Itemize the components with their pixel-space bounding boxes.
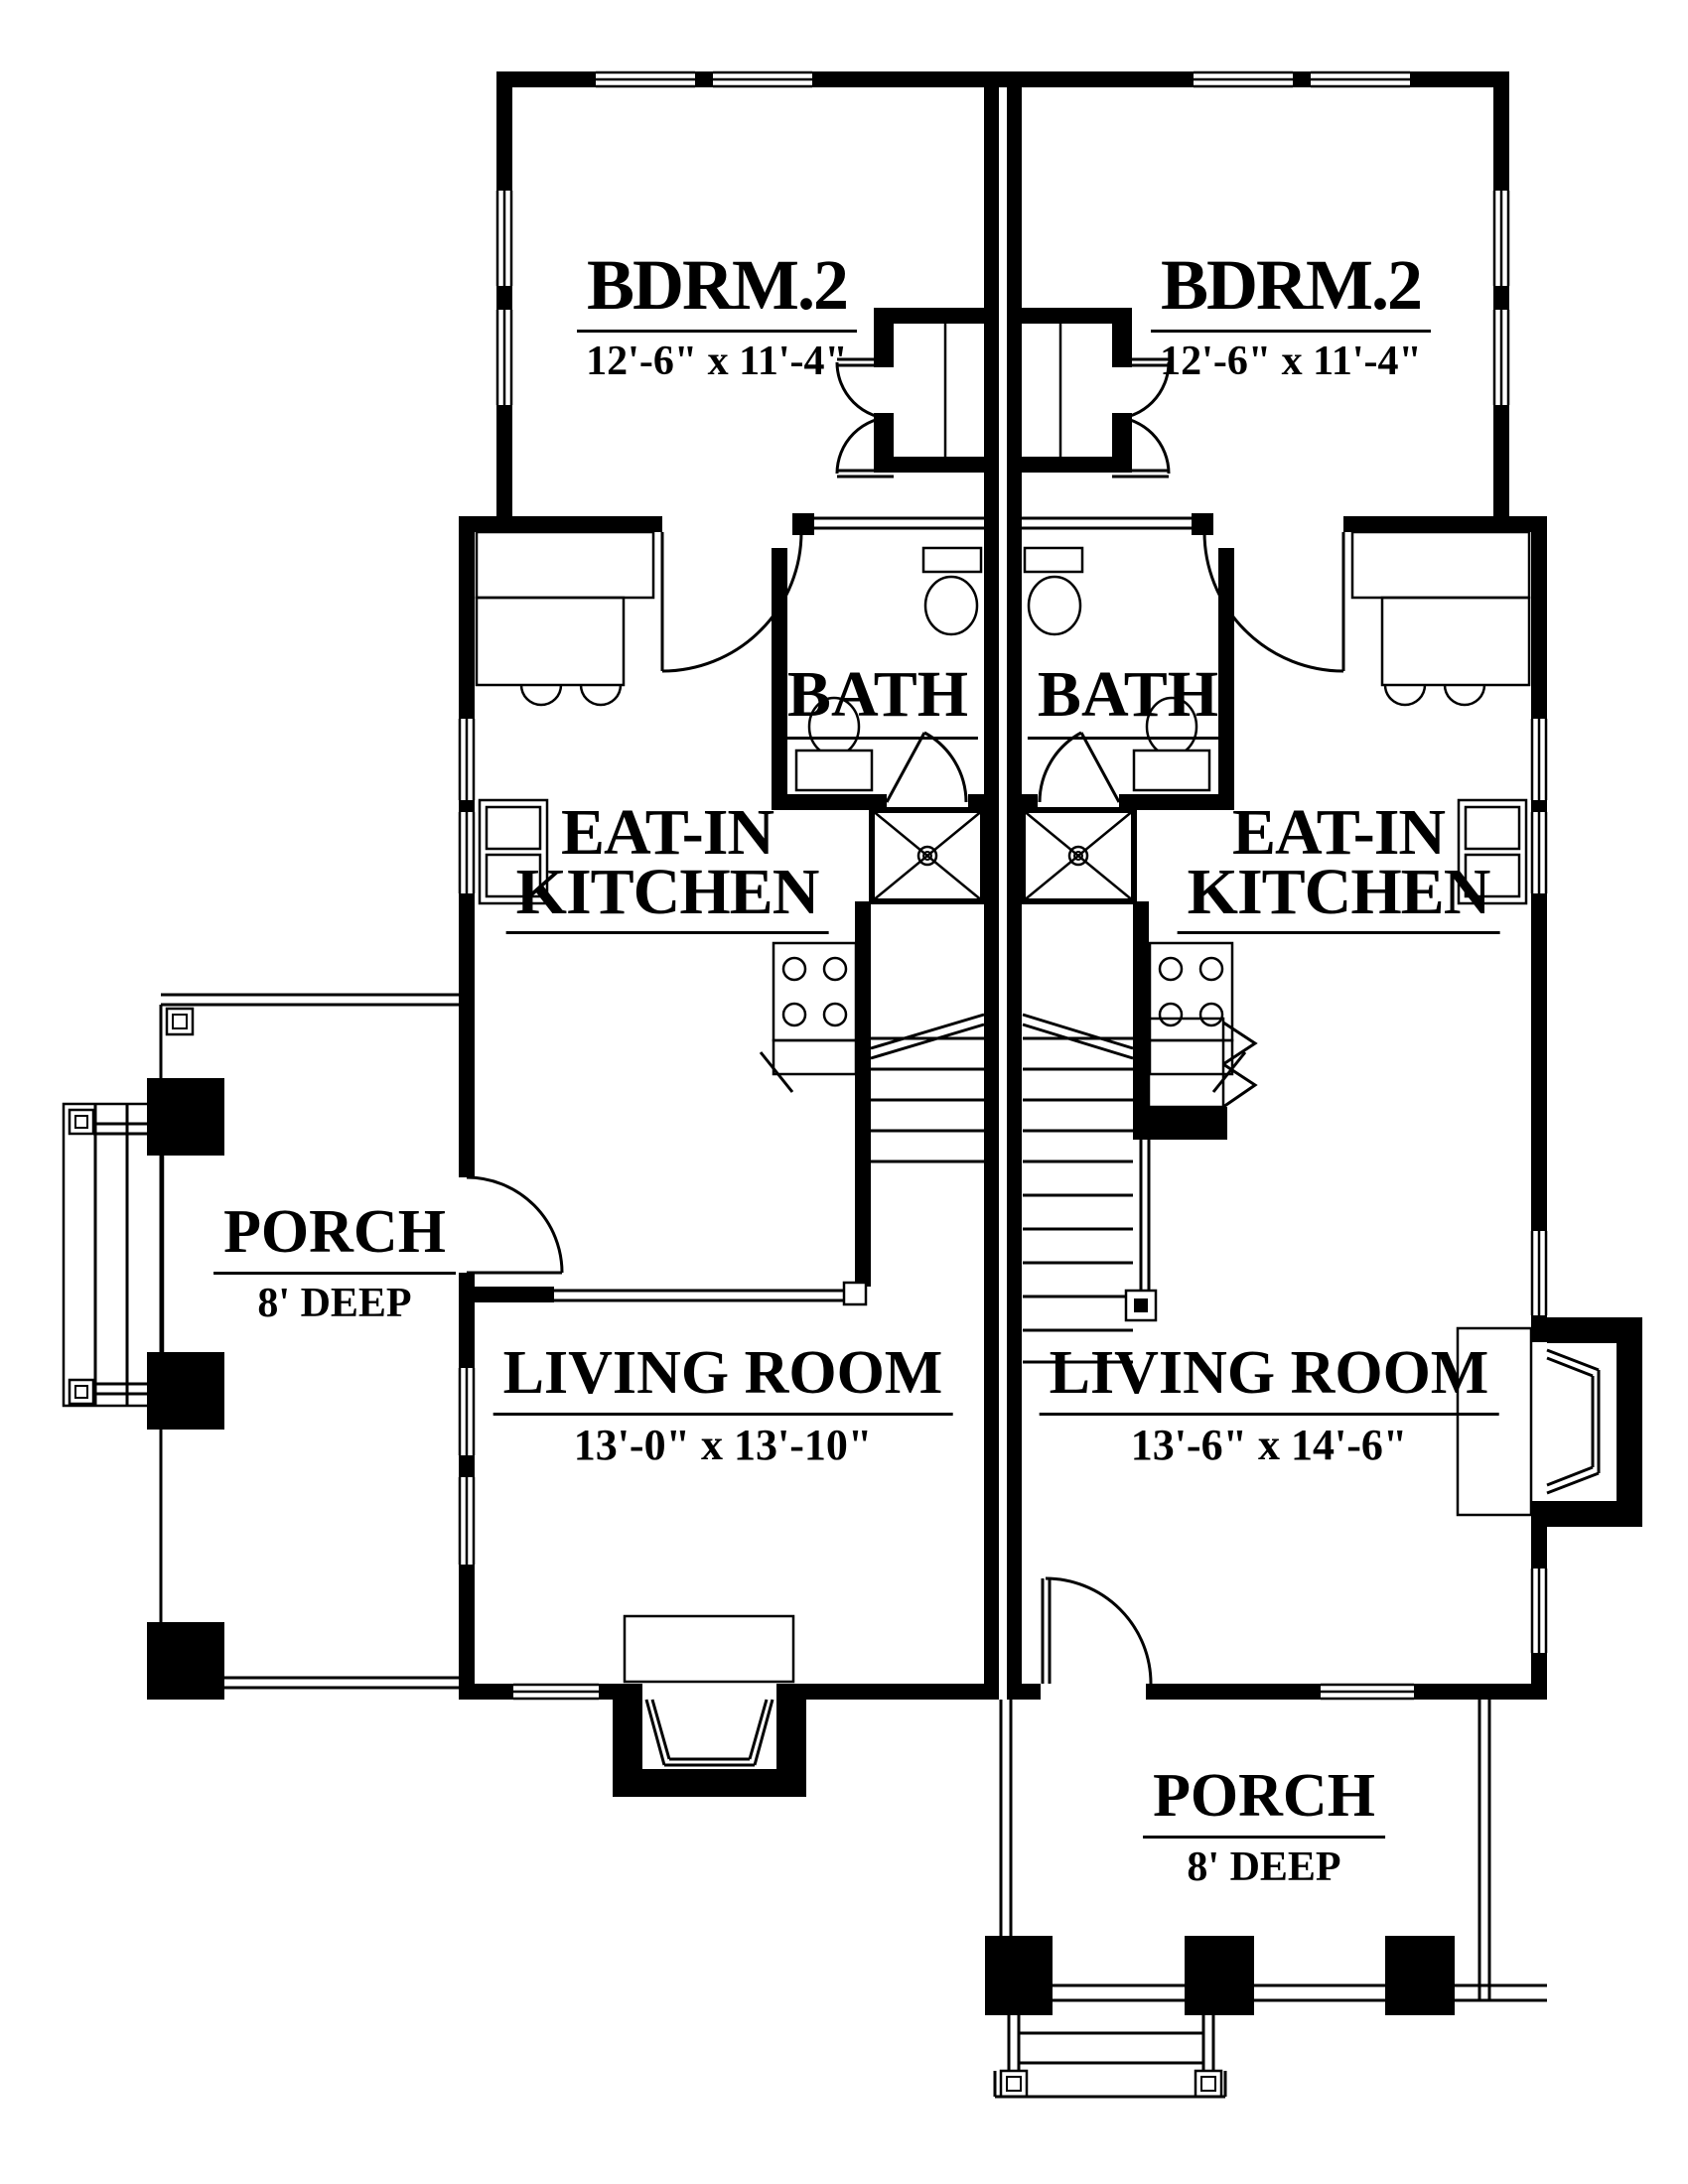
porch-bottom-columns xyxy=(985,1936,1455,2015)
box-bay-opening xyxy=(1531,1342,1547,1501)
understair-door-left xyxy=(761,1052,792,1092)
counter xyxy=(1352,532,1529,598)
chase-left xyxy=(872,810,983,901)
toilet-bowl xyxy=(925,577,977,634)
bath-door-left xyxy=(887,733,966,802)
kitchen-living-rail-left xyxy=(554,1291,855,1300)
room-label-living-left: LIVING ROOM 13'-0" x 13'-10" xyxy=(493,1342,953,1467)
counter xyxy=(1150,1040,1232,1074)
duplex-floor-plan: BDRM.2 12'-6" x 11'-4" BDRM.2 12'-6" x 1… xyxy=(0,0,1688,2184)
bay-window-left-unit xyxy=(625,1616,793,1765)
understair-door-right xyxy=(1213,1052,1245,1092)
rail-post-left xyxy=(844,1283,866,1304)
hall-header-right xyxy=(1022,518,1192,528)
room-label-bath-right: BATH xyxy=(1028,662,1228,740)
porch-left-structure xyxy=(64,995,459,1688)
room-label-porch-left: PORCH 8' DEEP xyxy=(213,1201,456,1324)
room-label-bedroom-right: BDRM.2 12'-6" x 11'-4" xyxy=(1151,249,1431,382)
hall-header-left xyxy=(814,518,984,528)
counter xyxy=(1382,598,1529,685)
toilet-tank xyxy=(923,548,981,572)
front-door-right xyxy=(1043,1578,1151,1684)
toilet-bowl xyxy=(1029,577,1080,634)
sink-base xyxy=(1134,751,1209,790)
range xyxy=(774,943,856,1040)
porch-bottom-structure xyxy=(995,1700,1547,2097)
stair-rail-right xyxy=(1023,1140,1149,1362)
room-label-bath-left: BATH xyxy=(777,662,978,740)
counter xyxy=(477,532,653,598)
bath-door-right xyxy=(1040,733,1119,802)
window-seat xyxy=(625,1616,793,1682)
room-label-kitchen-right: EAT-IN KITCHEN xyxy=(1178,803,1500,934)
room-label-living-right: LIVING ROOM 13'-6" x 14'-6" xyxy=(1040,1342,1499,1467)
counter xyxy=(477,598,624,685)
doors xyxy=(467,359,1343,1684)
front-door-opening xyxy=(1041,1684,1146,1700)
stairs-left-unit xyxy=(871,1015,984,1161)
porch-post xyxy=(167,1009,193,1034)
toilet-tank xyxy=(1025,548,1082,572)
porch-door-left xyxy=(467,1177,562,1273)
counter xyxy=(774,1040,856,1074)
chase-right xyxy=(1023,810,1134,901)
range xyxy=(1150,943,1232,1040)
sink-base xyxy=(796,751,872,790)
porch-door-opening xyxy=(459,1177,475,1273)
room-label-bedroom-left: BDRM.2 12'-6" x 11'-4" xyxy=(577,249,857,382)
porch-steps-bottom xyxy=(995,2015,1225,2097)
room-label-kitchen-left: EAT-IN KITCHEN xyxy=(506,803,829,934)
room-label-porch-bottom: PORCH 8' DEEP xyxy=(1143,1765,1385,1888)
bifold-closet-doors-right xyxy=(1149,1019,1255,1107)
porch-left-columns xyxy=(147,1078,224,1700)
